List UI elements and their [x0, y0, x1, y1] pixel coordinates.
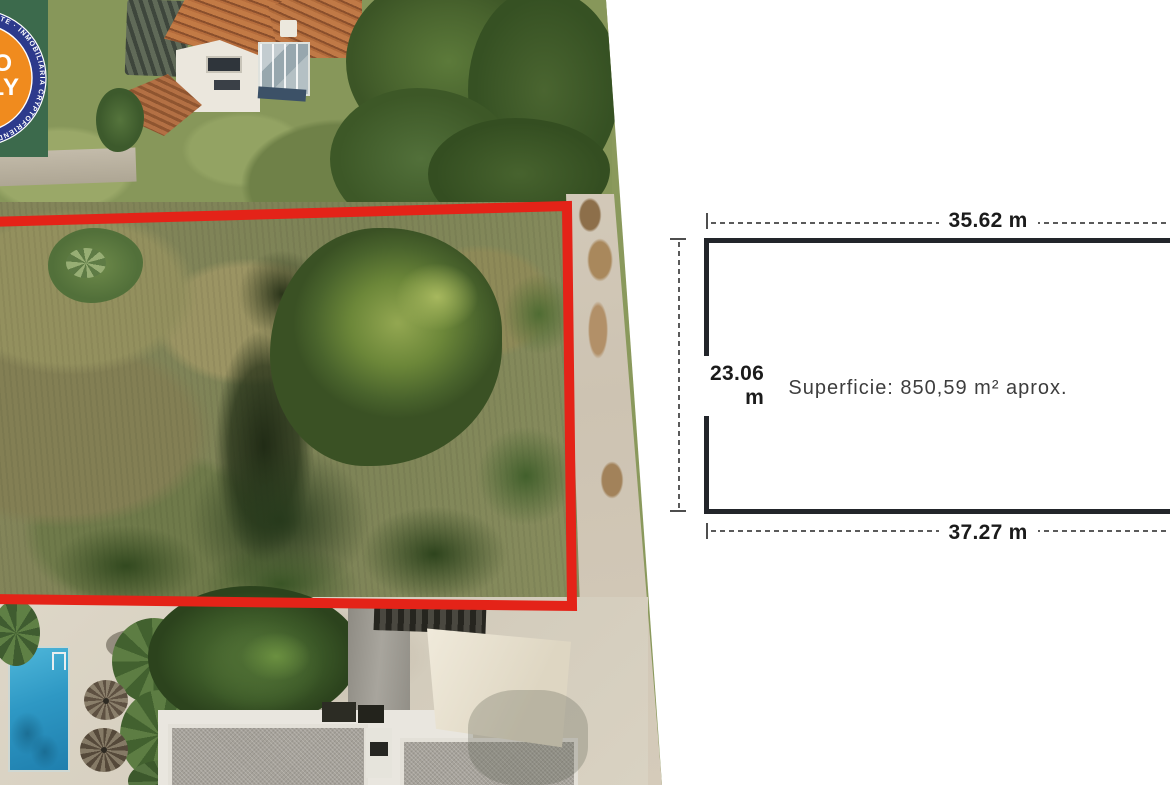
badge-center-text-bottom: LY [0, 74, 20, 101]
left-height-label: 23.06 m [702, 356, 766, 416]
left-dimension-line [678, 242, 680, 510]
badge-center-text-top: O [0, 50, 13, 77]
real-estate-listing-image: ESTATE · INMOBILIARIA CRYPTOFRIENDLY REA… [0, 0, 1170, 785]
bottom-width-label: 37.27 m [939, 521, 1038, 545]
dimension-tick [706, 523, 708, 539]
aerial-photo [0, 0, 663, 785]
area-label: Superficie: 850,59 m² aprox. [704, 377, 1170, 400]
watermark-badge: ESTATE · INMOBILIARIA CRYPTOFRIENDLY REA… [0, 0, 50, 158]
dimension-tick [670, 510, 686, 512]
dimension-tick [670, 238, 686, 240]
plot-plan-rectangle [704, 238, 1170, 514]
dimension-tick [706, 213, 708, 229]
top-width-label: 35.62 m [939, 209, 1038, 233]
plot-boundary-outline [0, 0, 663, 785]
